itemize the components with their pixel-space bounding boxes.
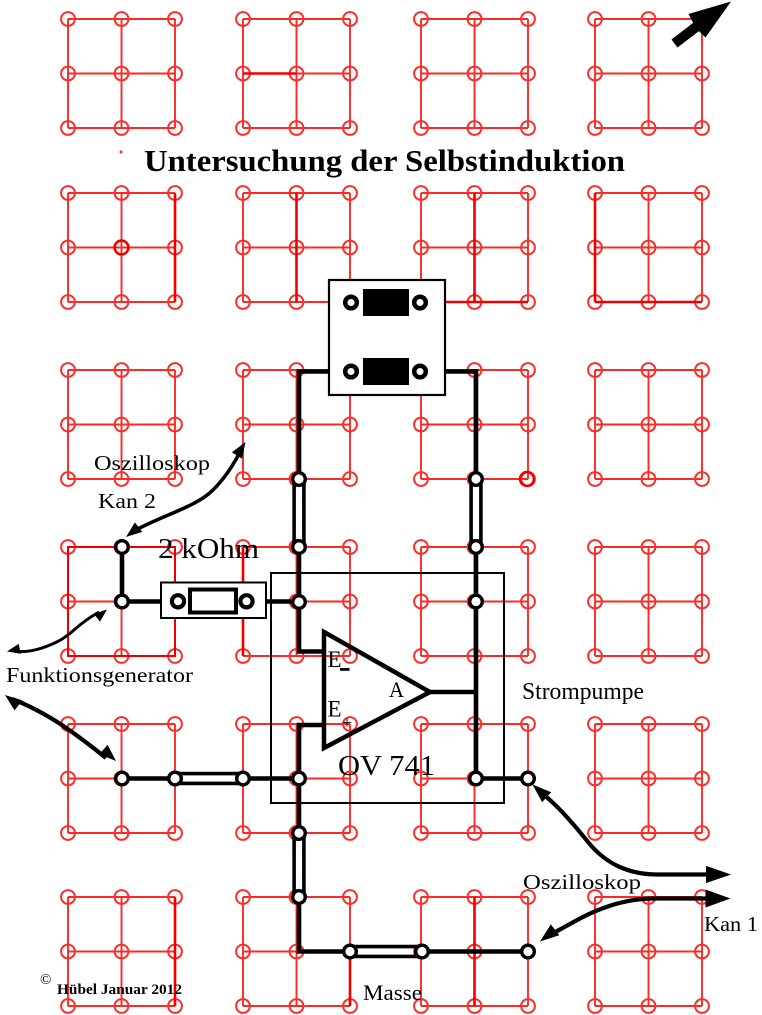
svg-text:2 kOhm: 2 kOhm	[158, 534, 259, 565]
svg-text:E: E	[328, 697, 342, 722]
svg-text:Oszilloskop: Oszilloskop	[94, 451, 210, 475]
svg-text:Strompumpe: Strompumpe	[522, 679, 644, 705]
svg-text:Untersuchung der Selbstindukti: Untersuchung der Selbstinduktion	[144, 143, 625, 178]
svg-text:Hübel Januar 2012: Hübel Januar 2012	[57, 982, 182, 998]
svg-text:+: +	[342, 713, 352, 733]
svg-text:A: A	[389, 677, 404, 702]
svg-text:OV 741: OV 741	[338, 750, 435, 782]
svg-text:©: ©	[40, 972, 51, 988]
svg-text:Kan 2: Kan 2	[98, 489, 156, 513]
svg-text:Oszilloskop: Oszilloskop	[523, 870, 641, 894]
svg-text:E: E	[328, 647, 342, 672]
svg-text:Kan 1: Kan 1	[704, 912, 758, 936]
svg-text:Masse: Masse	[363, 980, 422, 1005]
svg-text:Funktionsgenerator: Funktionsgenerator	[6, 663, 193, 687]
